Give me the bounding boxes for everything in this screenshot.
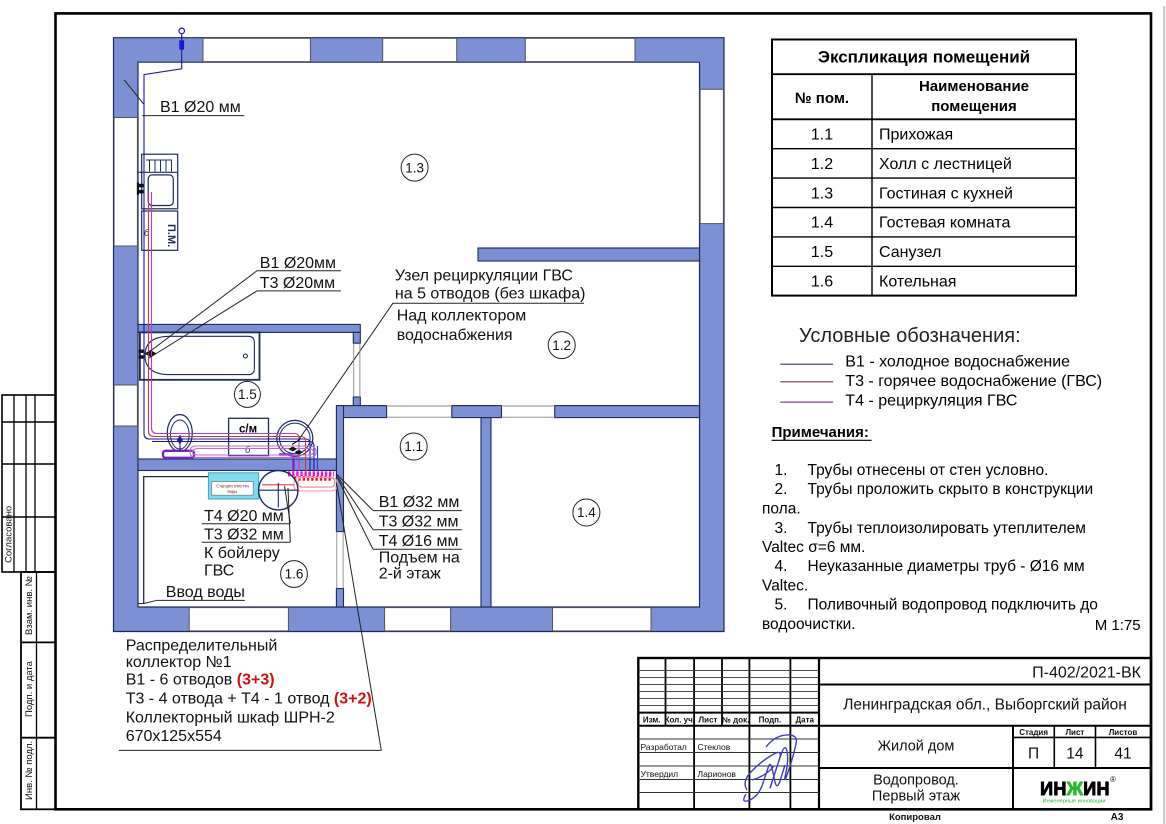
svg-text:Подъем на: Подъем на xyxy=(379,550,460,567)
svg-text:1.3: 1.3 xyxy=(811,185,833,202)
svg-text:пола.: пола. xyxy=(762,501,801,518)
svg-text:Согласовано: Согласовано xyxy=(4,506,15,563)
svg-text:К бойлеру: К бойлеру xyxy=(204,545,280,562)
svg-text:Водопровод.: Водопровод. xyxy=(873,773,959,789)
svg-text:1.3: 1.3 xyxy=(405,160,424,175)
svg-text:Т3 - 4 отвода + Т4 - 1 отвод (: Т3 - 4 отвода + Т4 - 1 отвод (3+2) xyxy=(126,691,372,708)
svg-text:Станция очистки: Станция очистки xyxy=(216,484,249,489)
svg-text:помещения: помещения xyxy=(931,98,1017,115)
svg-text:1.Трубы отнесены от стен услов: 1.Трубы отнесены от стен условно. xyxy=(775,462,1049,479)
svg-text:1.6: 1.6 xyxy=(811,274,833,291)
svg-text:коллектор №1: коллектор №1 xyxy=(126,654,232,671)
svg-text:№ док.: № док. xyxy=(722,715,749,724)
svg-text:Листов: Листов xyxy=(1109,728,1138,737)
svg-text:В1 - 6 отводов (3+3): В1 - 6 отводов (3+3) xyxy=(126,672,275,689)
svg-text:Холл с лестницей: Холл с лестницей xyxy=(879,156,1012,173)
svg-text:Инв. № подл.: Инв. № подл. xyxy=(24,741,35,800)
svg-text:Над коллектором: Над коллектором xyxy=(397,308,527,325)
svg-text:Прихожая: Прихожая xyxy=(879,127,953,144)
svg-text:1.2: 1.2 xyxy=(552,338,571,353)
svg-text:Лист: Лист xyxy=(1065,728,1084,737)
svg-text:Гостевая комната: Гостевая комната xyxy=(879,215,1010,232)
svg-text:Копировал: Копировал xyxy=(889,812,941,823)
svg-text:Стадия: Стадия xyxy=(1019,728,1048,737)
svg-text:5.Поливочный водопровод подклю: 5.Поливочный водопровод подключить до xyxy=(775,597,1098,614)
svg-text:Условные обозначения:: Условные обозначения: xyxy=(799,325,1021,347)
svg-text:А3: А3 xyxy=(1111,812,1124,823)
svg-text:ИНЖИН: ИНЖИН xyxy=(1040,779,1110,799)
svg-text:670х125х554: 670х125х554 xyxy=(126,728,222,745)
svg-text:б: б xyxy=(144,228,150,238)
svg-text:П-402/2021-ВК: П-402/2021-ВК xyxy=(1032,665,1142,682)
svg-text:Экспликация помещений: Экспликация помещений xyxy=(818,48,1030,67)
svg-text:Ввод воды: Ввод воды xyxy=(166,584,245,601)
svg-text:Valtec.: Valtec. xyxy=(762,577,808,594)
svg-text:П.М.: П.М. xyxy=(165,224,177,247)
svg-text:2.Трубы проложить скрыто в кон: 2.Трубы проложить скрыто в конструкции xyxy=(775,481,1094,498)
svg-text:№ пом.: № пом. xyxy=(795,90,849,107)
svg-text:Дата: Дата xyxy=(795,715,814,724)
svg-text:П: П xyxy=(1028,746,1039,763)
svg-text:В1 Ø20 мм: В1 Ø20 мм xyxy=(160,99,241,116)
svg-text:б: б xyxy=(245,445,251,456)
svg-text:ГВС: ГВС xyxy=(204,562,234,579)
svg-text:воды: воды xyxy=(227,489,237,494)
svg-text:Первый этаж: Первый этаж xyxy=(872,789,960,805)
svg-text:Ларионов: Ларионов xyxy=(698,769,737,779)
svg-text:1.2: 1.2 xyxy=(811,156,833,173)
svg-text:Гостиная с кухней: Гостиная с кухней xyxy=(879,185,1013,202)
svg-text:на 5 отводов (без шкафа): на 5 отводов (без шкафа) xyxy=(395,286,586,303)
svg-text:Распределительный: Распределительный xyxy=(126,637,278,654)
svg-text:Инженерные инновации: Инженерные инновации xyxy=(1043,799,1106,805)
svg-text:Разработал: Разработал xyxy=(641,742,687,752)
svg-text:41: 41 xyxy=(1114,746,1131,763)
svg-text:Коллекторный шкаф ШРН-2: Коллекторный шкаф ШРН-2 xyxy=(126,709,335,726)
svg-text:Санузел: Санузел xyxy=(879,244,941,261)
svg-text:1.1: 1.1 xyxy=(404,439,423,454)
svg-text:1.5: 1.5 xyxy=(811,244,833,261)
svg-text:Т4 Ø20 мм: Т4 Ø20 мм xyxy=(204,508,284,525)
svg-text:1.1: 1.1 xyxy=(811,127,833,144)
svg-text:Жилой дом: Жилой дом xyxy=(878,739,955,755)
svg-text:Подп.: Подп. xyxy=(759,715,782,724)
svg-text:Котельная: Котельная xyxy=(879,274,956,291)
svg-text:Ленинградская обл., Выборгский: Ленинградская обл., Выборгский район xyxy=(843,697,1127,714)
svg-text:Узел рециркуляции ГВС: Узел рециркуляции ГВС xyxy=(395,268,573,285)
svg-text:Т4 - рециркуляция ГВС: Т4 - рециркуляция ГВС xyxy=(845,393,1017,410)
svg-text:1.5: 1.5 xyxy=(238,387,257,402)
svg-text:Т3 Ø32 мм: Т3 Ø32 мм xyxy=(379,514,459,531)
svg-text:В1 - холодное водоснабжение: В1 - холодное водоснабжение xyxy=(845,354,1070,371)
svg-text:1.4: 1.4 xyxy=(811,215,833,232)
svg-text:14: 14 xyxy=(1066,746,1084,763)
svg-text:М 1:75: М 1:75 xyxy=(1095,617,1141,634)
svg-text:1.6: 1.6 xyxy=(285,567,304,582)
svg-text:Наименование: Наименование xyxy=(919,78,1029,95)
svg-text:®: ® xyxy=(1110,775,1116,784)
svg-text:Стеклов: Стеклов xyxy=(698,742,731,752)
svg-text:Кол. уч.: Кол. уч. xyxy=(665,715,695,724)
svg-text:водоочистки.: водоочистки. xyxy=(762,616,856,633)
svg-text:Т4 Ø16 мм: Т4 Ø16 мм xyxy=(379,533,459,550)
svg-text:Т3 Ø32 мм: Т3 Ø32 мм xyxy=(204,526,284,543)
svg-text:водоснабжения: водоснабжения xyxy=(397,327,513,344)
svg-text:В1 Ø32 мм: В1 Ø32 мм xyxy=(379,494,460,511)
svg-text:Valtec σ=6 мм.: Valtec σ=6 мм. xyxy=(762,539,865,556)
svg-text:Взам. инв. №: Взам. инв. № xyxy=(24,576,35,635)
svg-text:4.Неуказанные диаметры труб -: 4.Неуказанные диаметры труб - Ø16 мм xyxy=(775,558,1085,575)
svg-text:Изм.: Изм. xyxy=(643,715,661,724)
svg-text:Утвердил: Утвердил xyxy=(641,769,679,779)
svg-text:Примечания:: Примечания: xyxy=(772,424,869,441)
svg-text:2-й этаж: 2-й этаж xyxy=(379,566,441,583)
svg-text:В1 Ø20мм: В1 Ø20мм xyxy=(260,255,336,272)
svg-text:Лист: Лист xyxy=(699,715,718,724)
svg-text:Т3 Ø20мм: Т3 Ø20мм xyxy=(260,275,335,292)
svg-text:Т3 - горячее водоснабжение (ГВ: Т3 - горячее водоснабжение (ГВС) xyxy=(845,373,1102,390)
svg-text:1.4: 1.4 xyxy=(577,505,596,520)
svg-text:3.Трубы теплоизолировать утепл: 3.Трубы теплоизолировать утеплителем xyxy=(775,520,1086,537)
svg-text:Подп. и дата: Подп. и дата xyxy=(24,660,35,717)
